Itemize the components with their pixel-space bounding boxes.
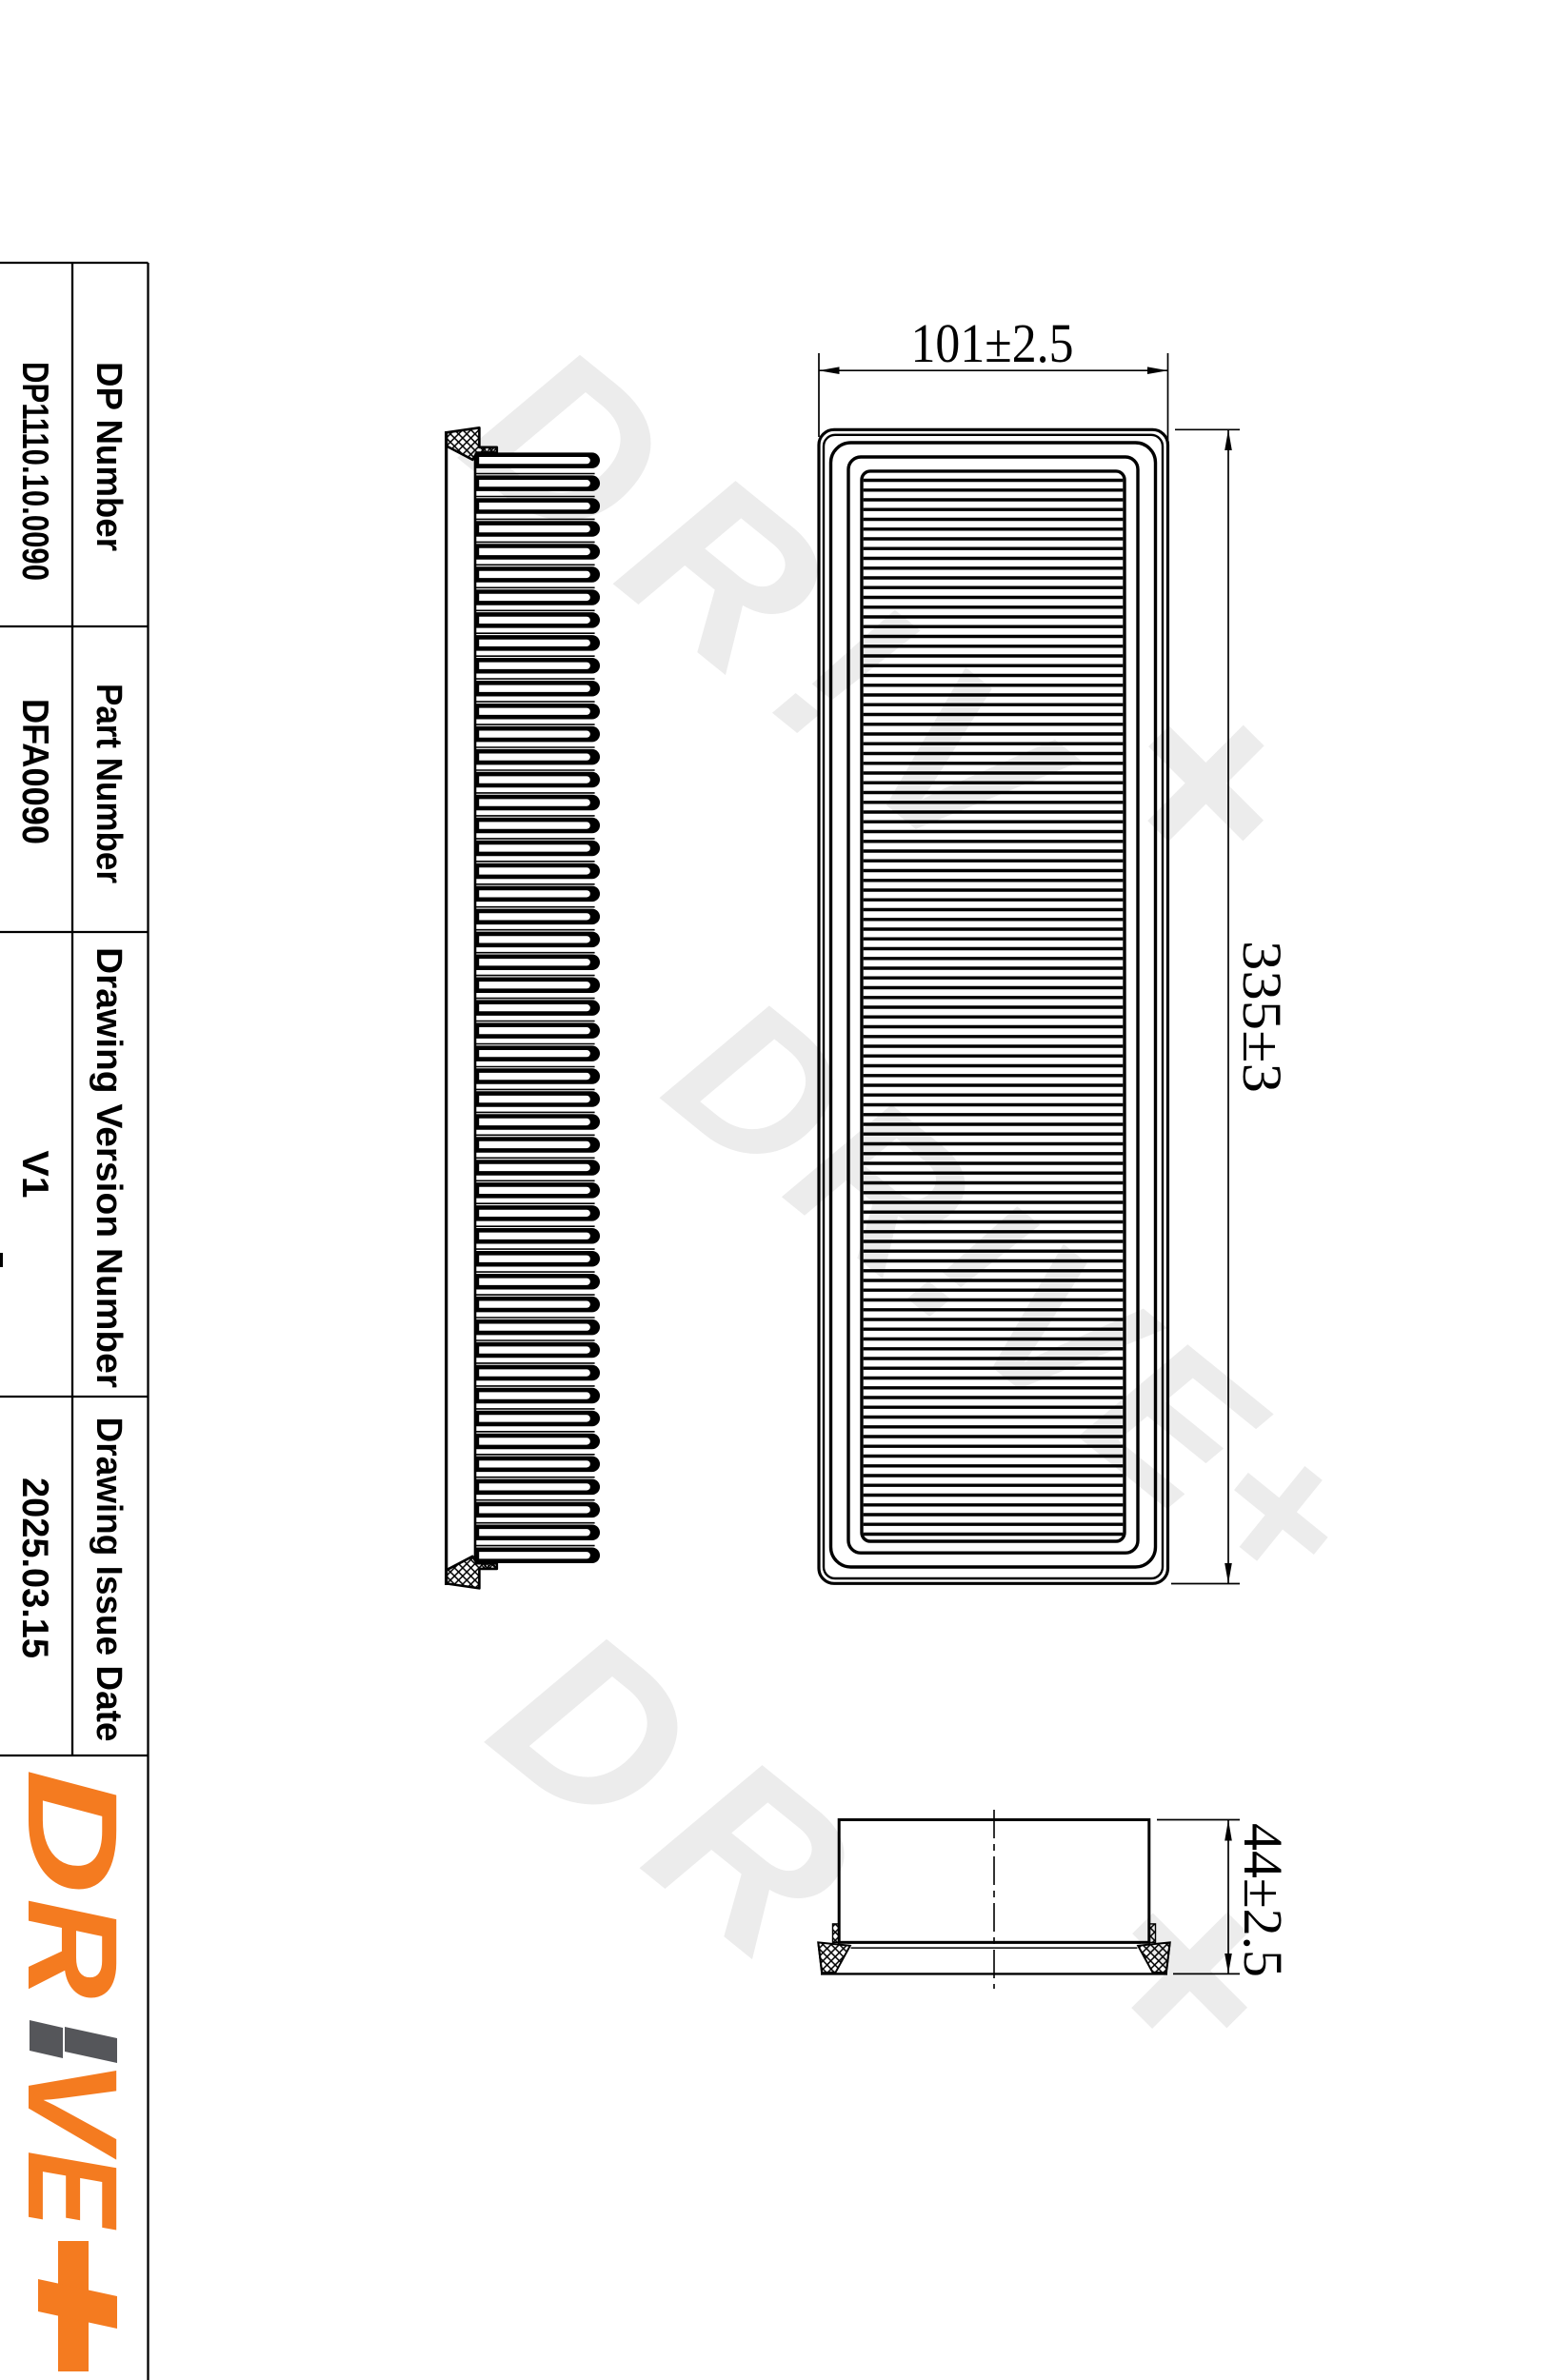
svg-text:101±2.5: 101±2.5 [911,312,1074,374]
svg-text:Drawing Version Number: Drawing Version Number [89,947,129,1388]
svg-text:335±3: 335±3 [1231,941,1293,1093]
svg-text:DP1110.10.0090: DP1110.10.0090 [14,362,55,581]
svg-text:R: R [1,1898,144,1998]
svg-text:V1: V1 [14,1151,55,1199]
svg-text:2025.03.15: 2025.03.15 [14,1478,55,1658]
svg-text:DFA0090: DFA0090 [14,699,55,844]
svg-text:D: D [2,1769,145,1894]
svg-text:44±2.5: 44±2.5 [1232,1823,1294,1977]
svg-text:Part Number: Part Number [89,684,129,883]
svg-text:Drawing Issue Date: Drawing Issue Date [89,1418,129,1742]
svg-text:V: V [1,2059,144,2160]
svg-text:E: E [1,2151,143,2231]
svg-text:DP Number: DP Number [89,362,129,551]
